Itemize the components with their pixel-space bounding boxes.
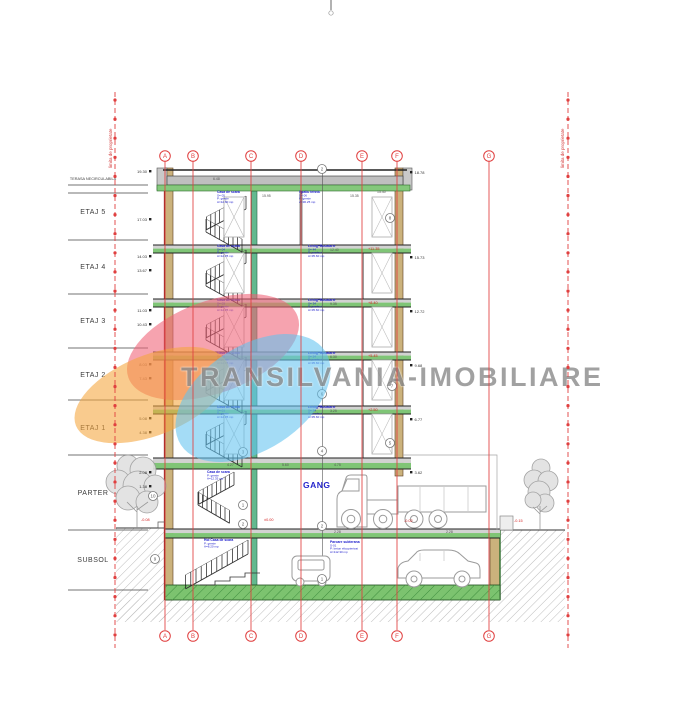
svg-text:9.68: 9.68 xyxy=(415,363,424,368)
red-level-text: +5.45 xyxy=(368,354,378,358)
dimension-text: 2.28 xyxy=(334,530,341,534)
svg-text:15.73: 15.73 xyxy=(415,255,426,260)
door-panel xyxy=(224,253,244,293)
dimension-text: 5.60 xyxy=(282,463,289,467)
floor-labels: TERASA NECIRCULABILAETAJ 5ETAJ 4ETAJ 3ET… xyxy=(70,177,117,564)
elevation-marker-right: 9.68 xyxy=(410,363,423,368)
architectural-section-drawing: TERASA NECIRCULABILAETAJ 5ETAJ 4ETAJ 3ET… xyxy=(0,0,673,720)
svg-text:6.77: 6.77 xyxy=(415,417,424,422)
svg-text:10: 10 xyxy=(150,494,156,499)
dimension-text: 6.30 xyxy=(330,355,337,359)
floor-label: ETAJ 4 xyxy=(80,264,105,271)
detail-marker: 2 xyxy=(239,520,248,529)
door-panel xyxy=(224,360,244,400)
elevation-marker-left: 17.03 xyxy=(137,217,151,222)
red-level-text: +2.50 xyxy=(368,408,378,412)
planter-box xyxy=(500,516,513,530)
red-level-texts: ±0.00-0.02-0.15-0.08+11.35+8.40+5.45+2.5… xyxy=(141,247,523,523)
svg-text:13.67: 13.67 xyxy=(137,268,148,273)
detail-marker: 1 xyxy=(318,575,327,584)
dimension-text: 4.75 xyxy=(334,463,341,467)
red-level-text: -0.15 xyxy=(514,519,523,523)
elevation-marker-left: 8.03 xyxy=(139,362,151,367)
svg-text:12.72: 12.72 xyxy=(415,309,426,314)
svg-text:11.03: 11.03 xyxy=(137,308,147,313)
detail-marker: 2 xyxy=(318,165,327,174)
floor-label: ETAJ 2 xyxy=(80,372,105,379)
elevation-marker-right: 3.62 xyxy=(410,470,423,475)
svg-text:3.62: 3.62 xyxy=(415,470,424,475)
car-station-wagon xyxy=(398,550,480,587)
dimension-text: 6.48 xyxy=(213,177,220,181)
section-drawing-canvas: TERASA NECIRCULABILAETAJ 5ETAJ 4ETAJ 3ET… xyxy=(0,0,673,720)
tree-right xyxy=(524,459,558,530)
floor-label: ETAJ 1 xyxy=(80,425,105,432)
floor-label: ETAJ 5 xyxy=(80,209,105,216)
door-panel xyxy=(372,360,392,400)
door-panel xyxy=(224,307,244,347)
svg-text:17.03: 17.03 xyxy=(137,217,148,222)
floor-label: ETAJ 3 xyxy=(80,318,105,325)
elevation-marker-left: 11.03 xyxy=(137,308,151,313)
detail-marker: 3 xyxy=(239,448,248,457)
elevation-marker-left: 19.30 xyxy=(137,169,151,174)
elevation-marker-left: 4.38 xyxy=(139,430,151,435)
door-panel xyxy=(372,307,392,347)
detail-marker: 5 xyxy=(386,439,395,448)
red-level-text: ±0.00 xyxy=(264,518,273,522)
elevation-marker-left: 10.43 xyxy=(137,322,151,327)
red-level-text: +11.35 xyxy=(368,247,379,251)
elevation-marker-right: 12.72 xyxy=(410,309,425,314)
svg-text:8.03: 8.03 xyxy=(139,362,148,367)
red-level-text: -0.08 xyxy=(141,518,150,522)
dimension-text: 3.25 xyxy=(330,409,337,413)
detail-marker: 9 xyxy=(151,555,160,564)
elevation-marker-right: 15.73 xyxy=(410,255,425,260)
svg-text:1.38: 1.38 xyxy=(139,484,148,489)
svg-text:2.08: 2.08 xyxy=(139,470,148,475)
dimension-text: 9.35 xyxy=(330,302,337,306)
top-leader-mark xyxy=(329,0,333,15)
svg-text:4.38: 4.38 xyxy=(139,430,148,435)
svg-text:7.43: 7.43 xyxy=(139,376,148,381)
elevation-marker-left: 13.67 xyxy=(137,268,151,273)
elevation-marker-left: 7.43 xyxy=(139,376,151,381)
detail-marker: 6 xyxy=(318,390,327,399)
door-panel xyxy=(372,253,392,293)
svg-text:18.78: 18.78 xyxy=(415,170,426,175)
red-level-text: -0.02 xyxy=(404,519,413,523)
dimension-text: 15.40 xyxy=(377,190,386,194)
dimension-text: 4.27 xyxy=(227,463,234,467)
room-label: Hol Casa de scaraP: gresieA=8.20 mp xyxy=(204,538,233,549)
room-label: Spatiu tehnicS= 06P: gresieA=30.25 mp xyxy=(299,190,320,204)
svg-text:10.43: 10.43 xyxy=(137,322,148,327)
svg-text:14.03: 14.03 xyxy=(137,254,148,259)
door-panel xyxy=(372,414,392,454)
detail-marker: 1 xyxy=(239,501,248,510)
svg-text:19.30: 19.30 xyxy=(137,169,148,174)
detail-marker: 2 xyxy=(318,522,327,531)
detail-marker: 8 xyxy=(386,214,395,223)
gang-label: GANG xyxy=(303,480,331,490)
roof-slab xyxy=(157,168,412,191)
detail-marker: 4 xyxy=(318,447,327,456)
room-label: Casa de scaraP: gresieA=12.35 mp xyxy=(207,470,230,481)
floor-label: PARTER xyxy=(78,490,109,497)
elevation-marker-right: 6.77 xyxy=(410,417,423,422)
room-label: Parcare subteranaS-01P: beton elicopteri… xyxy=(330,540,360,554)
elevation-marker-left: 14.03 xyxy=(137,254,151,259)
detail-marker: 7 xyxy=(388,382,397,391)
red-level-text: +8.40 xyxy=(368,301,378,305)
floor-label: SUBSOL xyxy=(77,557,108,564)
dimension-text: 2.28 xyxy=(446,530,453,534)
svg-text:5.08: 5.08 xyxy=(139,416,148,421)
dimension-text: 15.35 xyxy=(350,194,359,198)
dimension-text: 15.95 xyxy=(262,194,271,198)
basement-floor-slab xyxy=(165,585,500,600)
detail-marker: 10 xyxy=(149,492,158,501)
floor-label: TERASA NECIRCULABILA xyxy=(70,177,117,181)
dimension-text: 12.40 xyxy=(330,248,339,252)
elevation-marker-left: 5.08 xyxy=(139,416,151,421)
